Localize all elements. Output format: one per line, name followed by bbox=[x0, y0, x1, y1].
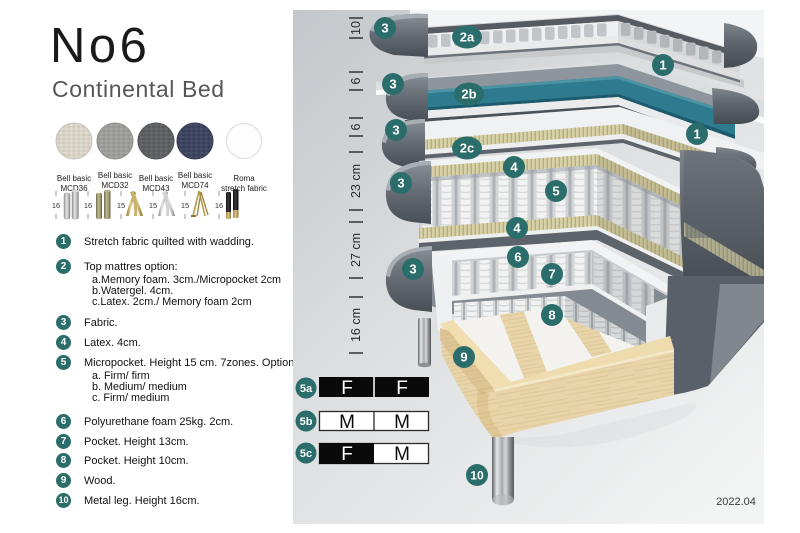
svg-text:10: 10 bbox=[470, 469, 484, 483]
svg-text:2c: 2c bbox=[460, 141, 474, 156]
svg-text:5c: 5c bbox=[300, 448, 312, 460]
svg-text:1: 1 bbox=[659, 58, 666, 73]
svg-text:10: 10 bbox=[349, 21, 363, 35]
svg-text:M: M bbox=[339, 412, 355, 433]
svg-text:3: 3 bbox=[381, 21, 388, 36]
svg-text:7: 7 bbox=[548, 267, 555, 282]
svg-text:3: 3 bbox=[409, 262, 416, 277]
svg-text:1: 1 bbox=[693, 127, 700, 142]
svg-text:27 cm: 27 cm bbox=[349, 233, 363, 267]
svg-text:4: 4 bbox=[510, 160, 518, 175]
svg-text:2b: 2b bbox=[461, 87, 476, 102]
svg-text:5a: 5a bbox=[300, 383, 313, 395]
svg-text:F: F bbox=[396, 378, 408, 399]
svg-text:3: 3 bbox=[389, 77, 396, 92]
svg-text:6: 6 bbox=[349, 123, 363, 130]
svg-text:M: M bbox=[394, 444, 410, 465]
svg-text:5: 5 bbox=[552, 184, 559, 199]
svg-text:M: M bbox=[394, 412, 410, 433]
svg-text:F: F bbox=[341, 444, 353, 465]
svg-text:4: 4 bbox=[513, 221, 521, 236]
svg-text:8: 8 bbox=[548, 308, 555, 323]
svg-text:3: 3 bbox=[397, 176, 404, 191]
svg-text:5b: 5b bbox=[300, 416, 313, 428]
svg-text:23 cm: 23 cm bbox=[349, 164, 363, 198]
svg-text:2a: 2a bbox=[460, 30, 475, 45]
svg-text:3: 3 bbox=[392, 123, 399, 138]
svg-text:16 cm: 16 cm bbox=[349, 308, 363, 342]
svg-text:6: 6 bbox=[349, 77, 363, 84]
svg-text:F: F bbox=[341, 378, 353, 399]
svg-text:9: 9 bbox=[460, 350, 467, 365]
svg-text:6: 6 bbox=[514, 250, 521, 265]
